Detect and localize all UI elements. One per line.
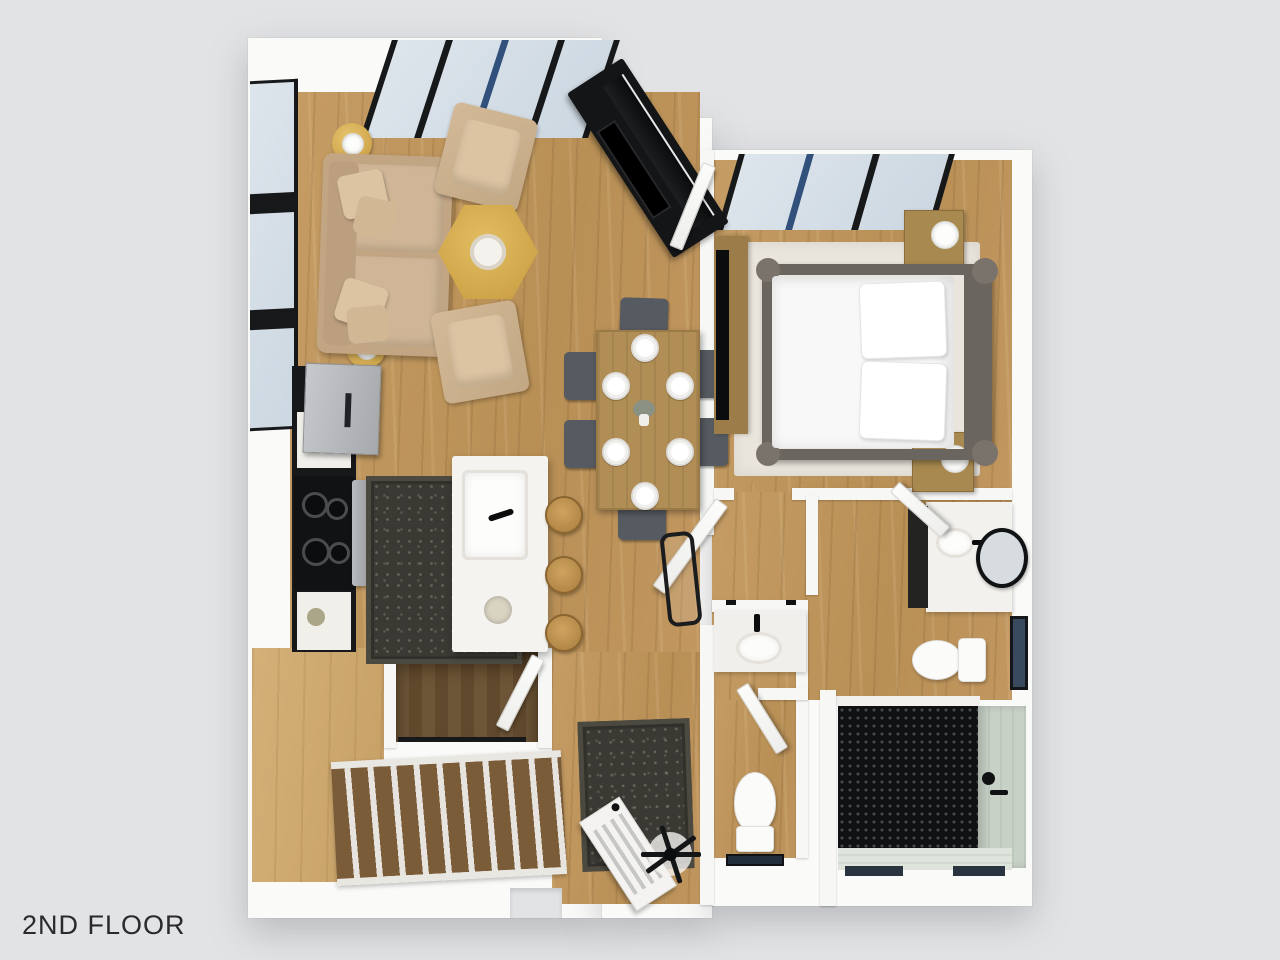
dining-chair [564, 420, 600, 468]
stair-railing [398, 737, 526, 742]
powder-sink [736, 632, 782, 664]
island-decor-bowl [484, 596, 512, 624]
shower-curb [836, 696, 980, 706]
wall-hall-divider [806, 495, 818, 595]
throw-pillow [346, 304, 390, 344]
dining-chair [564, 352, 600, 400]
door-divider [414, 40, 453, 138]
place-setting [631, 334, 659, 362]
shower-fixtures [982, 772, 1012, 806]
centerpiece-vase [639, 414, 649, 426]
office-chair [638, 822, 704, 888]
bed [762, 264, 992, 460]
place-setting [666, 372, 694, 400]
floor-plan-render: 2ND FLOOR [0, 0, 1280, 960]
nightstand-lamp [931, 221, 959, 249]
place-setting [666, 438, 694, 466]
bed-pillow [859, 361, 948, 442]
powder-faucet [754, 614, 760, 632]
bed-headboard [964, 264, 992, 460]
shower-glass-frame [953, 866, 1005, 876]
desk-lamp [610, 802, 621, 813]
powder-vanity [714, 610, 806, 672]
place-setting [602, 372, 630, 400]
bathroom-window [1010, 616, 1028, 690]
refrigerator [302, 363, 381, 456]
powder-toilet [732, 772, 776, 854]
shower-glass-frame [845, 866, 903, 876]
bedroom-tv [716, 250, 729, 420]
nightstand [904, 210, 964, 268]
window-divider [250, 192, 294, 214]
entry-notch [510, 888, 562, 918]
toilet-bowl [734, 772, 776, 832]
office-chair-hub [664, 848, 677, 861]
toilet-tank [736, 826, 774, 852]
bed-post [972, 440, 998, 466]
bar-stool [545, 556, 583, 594]
window-divider [851, 154, 880, 230]
throw-pillow [352, 195, 399, 240]
towel-hook [726, 600, 736, 605]
bathroom-toilet [912, 636, 986, 682]
bed-pillow [859, 281, 948, 360]
counter-plant [307, 608, 325, 626]
wall-powder-mid [758, 688, 808, 700]
burner [302, 538, 330, 566]
kitchen-countertop [297, 592, 351, 650]
window-divider [250, 308, 294, 330]
shower-valve [982, 772, 995, 785]
floor-label: 2ND FLOOR [22, 910, 186, 941]
coffee-table-tray [470, 234, 506, 270]
round-mirror [976, 528, 1028, 588]
bar-stool [545, 496, 583, 534]
toilet-bowl [912, 640, 962, 680]
bar-stool [545, 614, 583, 652]
place-setting [602, 438, 630, 466]
living-room-left-windows [250, 79, 298, 432]
shower-floor [838, 706, 978, 848]
place-setting [631, 482, 659, 510]
range-stove [294, 476, 354, 590]
shower-spout [990, 790, 1008, 795]
powder-window [726, 854, 784, 866]
bed-post [972, 258, 998, 284]
table-lamp [342, 133, 364, 155]
armchair [430, 299, 531, 405]
centerpiece [633, 400, 655, 426]
burner [328, 542, 350, 564]
staircase [331, 750, 567, 886]
armchair-cushion [450, 118, 522, 196]
burner [326, 498, 348, 520]
burner [302, 492, 328, 518]
kitchen-island [452, 456, 548, 652]
window-divider-blue [785, 154, 814, 230]
armchair-cushion [446, 313, 515, 388]
towel-hook [786, 600, 796, 605]
fridge-door-gap [344, 393, 351, 427]
toilet-tank [958, 638, 986, 682]
wall-shower-left [820, 690, 836, 906]
